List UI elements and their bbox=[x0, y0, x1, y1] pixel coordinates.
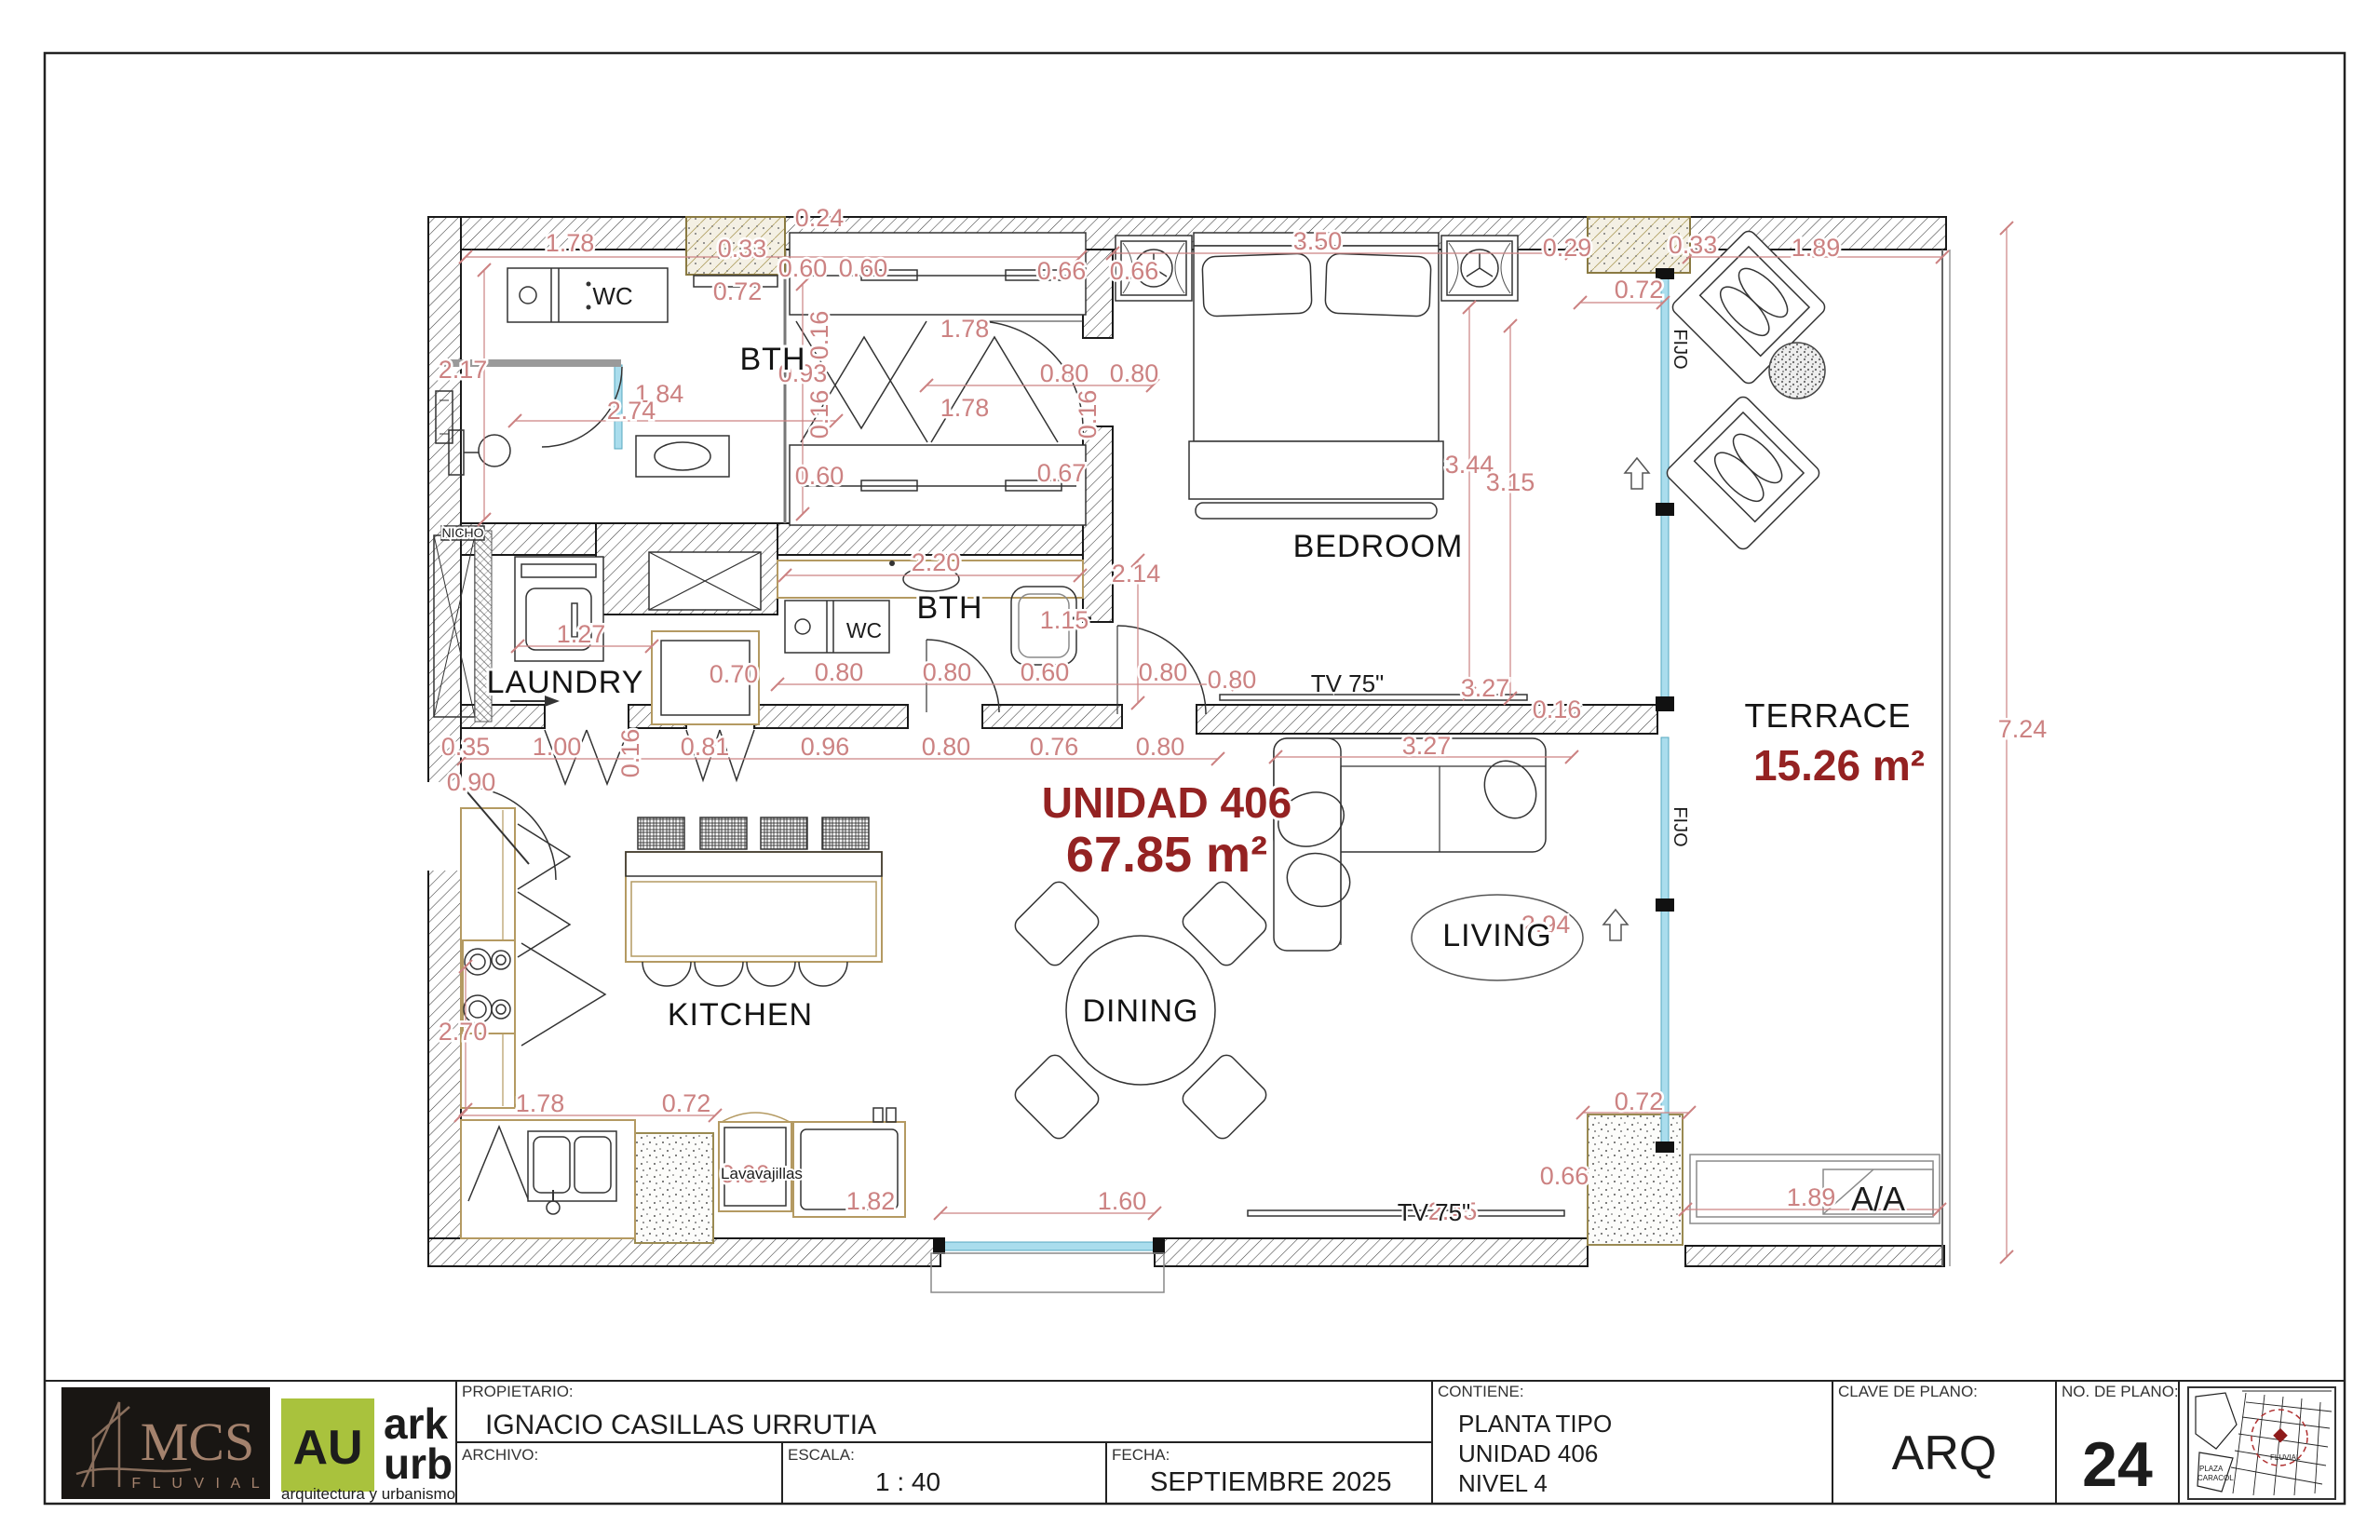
dim-text: 0.60 bbox=[1021, 658, 1070, 686]
map-label-plaza: PLAZA bbox=[2199, 1465, 2224, 1473]
dim-text: 0.81 bbox=[681, 733, 730, 761]
arkurb-sub: arquitectura y urbanismo bbox=[281, 1485, 455, 1503]
dim-text: 0.16 bbox=[805, 311, 833, 360]
map-label-fluvial: FLUVIAL bbox=[2270, 1453, 2301, 1462]
dim-text: 1.60 bbox=[1098, 1187, 1147, 1215]
dim-text: 0.33 bbox=[1669, 231, 1718, 259]
dim-text: 0.80 bbox=[1139, 658, 1188, 686]
stool bbox=[761, 817, 807, 849]
fecha-value: SEPTIEMBRE 2025 bbox=[1150, 1467, 1392, 1497]
stool bbox=[638, 817, 684, 849]
fix-text: TV 75" bbox=[1398, 1198, 1471, 1226]
dim-text: 0.72 bbox=[662, 1089, 711, 1117]
dim-text: 7.24 bbox=[1998, 715, 2048, 743]
fecha-label: FECHA: bbox=[1112, 1446, 1170, 1464]
sofa-chaise bbox=[1274, 738, 1341, 951]
terrace-area: 15.26 m² bbox=[1753, 741, 1925, 790]
map-label-caracol: CARACOL bbox=[2197, 1474, 2234, 1482]
dim-text: 0.80 bbox=[1208, 666, 1257, 694]
dim-text: 1.82 bbox=[846, 1187, 896, 1215]
dim-text: 0.60 bbox=[839, 254, 888, 282]
room-text: BTH bbox=[917, 590, 983, 626]
dim-text: 2.74 bbox=[607, 397, 656, 425]
dim-text: 0.16 bbox=[805, 390, 833, 439]
escala-label: ESCALA: bbox=[788, 1446, 855, 1464]
dim-text: 0.72 bbox=[713, 277, 763, 305]
clave-label: CLAVE DE PLANO: bbox=[1838, 1383, 1978, 1400]
room-text: LAUNDRY bbox=[487, 665, 644, 700]
dim-text: 0.35 bbox=[441, 733, 491, 761]
window-mullion bbox=[933, 1237, 945, 1254]
room-text: BTH bbox=[740, 342, 806, 377]
stool bbox=[822, 817, 869, 849]
room-text: DINING bbox=[1083, 993, 1199, 1029]
sink bbox=[528, 1131, 616, 1201]
fix-text: FIJO bbox=[1670, 329, 1690, 369]
contiene-label: CONTIENE: bbox=[1438, 1383, 1524, 1400]
drawing-sheet: 1.780.330.240.600.600.720.660.663.500.29… bbox=[0, 0, 2380, 1540]
stool bbox=[700, 817, 747, 849]
column-kitchen bbox=[635, 1133, 713, 1243]
room-text: TERRACE bbox=[1744, 696, 1911, 735]
window-mullion bbox=[1656, 1141, 1674, 1153]
toilet bbox=[507, 268, 668, 322]
mcs-logo-sub: F L U V I A L bbox=[131, 1476, 263, 1492]
fix-text: WC bbox=[846, 618, 882, 642]
dim-text: 0.16 bbox=[616, 729, 644, 778]
dim-text: 0.80 bbox=[1040, 359, 1089, 387]
terrace-table bbox=[1769, 343, 1825, 399]
dim-text: 1.00 bbox=[533, 733, 582, 761]
propietario-label: PROPIETARIO: bbox=[462, 1383, 574, 1400]
dim-text: 0.80 bbox=[923, 658, 972, 686]
arkurb-line2: urb bbox=[384, 1439, 453, 1488]
room-text: LIVING bbox=[1442, 918, 1551, 953]
dim-text: 0.33 bbox=[718, 235, 767, 263]
fix-text: TV 75" bbox=[1311, 669, 1385, 697]
dim-text: 3.27 bbox=[1461, 674, 1510, 702]
dim-text: 1.78 bbox=[546, 229, 595, 257]
window-living-glass bbox=[1661, 737, 1669, 1147]
fix-text: FIJO bbox=[1670, 806, 1690, 846]
dim-text: 1.78 bbox=[516, 1089, 565, 1117]
dim-text: 0.16 bbox=[1074, 390, 1102, 439]
fix-text: A/A bbox=[1851, 1180, 1905, 1218]
room-text: BEDROOM bbox=[1293, 529, 1464, 564]
dim-text: 0.66 bbox=[1110, 257, 1159, 285]
unit-name: UNIDAD 406 bbox=[1042, 778, 1291, 827]
dim-text: 3.50 bbox=[1293, 227, 1343, 255]
dim-text: 2.14 bbox=[1112, 560, 1161, 588]
dim-text: 0.80 bbox=[815, 658, 864, 686]
arkurb-logo: AU ark urb arquitectura y urbanismo bbox=[281, 1398, 455, 1503]
dim-text: 0.80 bbox=[922, 733, 971, 761]
dim-text: 1.27 bbox=[557, 620, 606, 648]
unit-area: 67.85 m² bbox=[1066, 827, 1267, 883]
dim-text: 1.89 bbox=[1792, 234, 1841, 262]
window-mullion bbox=[1656, 503, 1674, 516]
dim-text: 0.29 bbox=[1543, 234, 1592, 262]
dim-text: 0.72 bbox=[1615, 1087, 1664, 1115]
nightstand-right bbox=[1441, 236, 1518, 301]
archivo-label: ARCHIVO: bbox=[462, 1446, 538, 1464]
dim-text: 0.76 bbox=[1030, 733, 1079, 761]
dim-text: 0.24 bbox=[795, 204, 845, 232]
bed-mattress bbox=[1194, 246, 1439, 441]
dim-text: 0.60 bbox=[778, 254, 828, 282]
mcs-logo-text: MCS bbox=[141, 1412, 255, 1472]
contiene-line-1: PLANTA TIPO bbox=[1458, 1410, 1612, 1438]
location-map: PLAZA CARACOL FLUVIAL bbox=[2188, 1387, 2335, 1499]
dim-text: 0.66 bbox=[1540, 1162, 1589, 1190]
dim-text: 3.15 bbox=[1486, 468, 1535, 496]
escala-value: 1 : 40 bbox=[875, 1467, 940, 1496]
window-bedroom-glass bbox=[1661, 276, 1669, 702]
clave-value: ARQ bbox=[1892, 1426, 1997, 1480]
window-mullion bbox=[1656, 696, 1674, 711]
numero-label: NO. DE PLANO: bbox=[2062, 1383, 2179, 1400]
dim-text: 0.96 bbox=[801, 733, 850, 761]
mcs-logo: MCS F L U V I A L bbox=[61, 1387, 270, 1499]
bed-blanket bbox=[1189, 441, 1443, 499]
dim-text: 1.89 bbox=[1787, 1183, 1836, 1211]
fix-text: Lavavajillas bbox=[721, 1165, 803, 1182]
dim-text: 1.78 bbox=[940, 315, 990, 343]
dim-text: 2.17 bbox=[439, 356, 488, 384]
dim-text: 1.78 bbox=[940, 394, 990, 422]
dim-text: 0.16 bbox=[1533, 696, 1582, 723]
room-text: KITCHEN bbox=[668, 997, 813, 1033]
arkurb-monogram: AU bbox=[292, 1421, 362, 1475]
window-mullion bbox=[1153, 1237, 1165, 1254]
contiene-line-3: NIVEL 4 bbox=[1458, 1469, 1548, 1497]
dim-text: 2.70 bbox=[439, 1018, 488, 1046]
dim-text: 0.66 bbox=[1037, 257, 1087, 285]
dim-text: 3.27 bbox=[1402, 732, 1452, 760]
propietario-value: IGNACIO CASILLAS URRUTIA bbox=[485, 1410, 876, 1440]
dim-text: 0.72 bbox=[1615, 276, 1664, 304]
window-mullion bbox=[1656, 898, 1674, 912]
dim-text: 0.90 bbox=[447, 768, 496, 796]
dim-text: 0.80 bbox=[1110, 359, 1159, 387]
dim-text: 0.60 bbox=[795, 462, 845, 490]
dim-text: 1.15 bbox=[1040, 606, 1089, 634]
bed-foot bbox=[1196, 503, 1437, 519]
fix-text: NICHO bbox=[441, 525, 483, 540]
contiene-line-2: UNIDAD 406 bbox=[1458, 1439, 1598, 1467]
dim-text: 0.70 bbox=[710, 660, 759, 688]
dim-text: 0.67 bbox=[1037, 459, 1087, 487]
fix-text: WC bbox=[592, 282, 632, 310]
dim-text: 2.20 bbox=[912, 548, 961, 576]
numero-value: 24 bbox=[2082, 1429, 2153, 1500]
window-bottom-glass bbox=[942, 1242, 1155, 1250]
dim-text: 0.80 bbox=[1136, 733, 1185, 761]
